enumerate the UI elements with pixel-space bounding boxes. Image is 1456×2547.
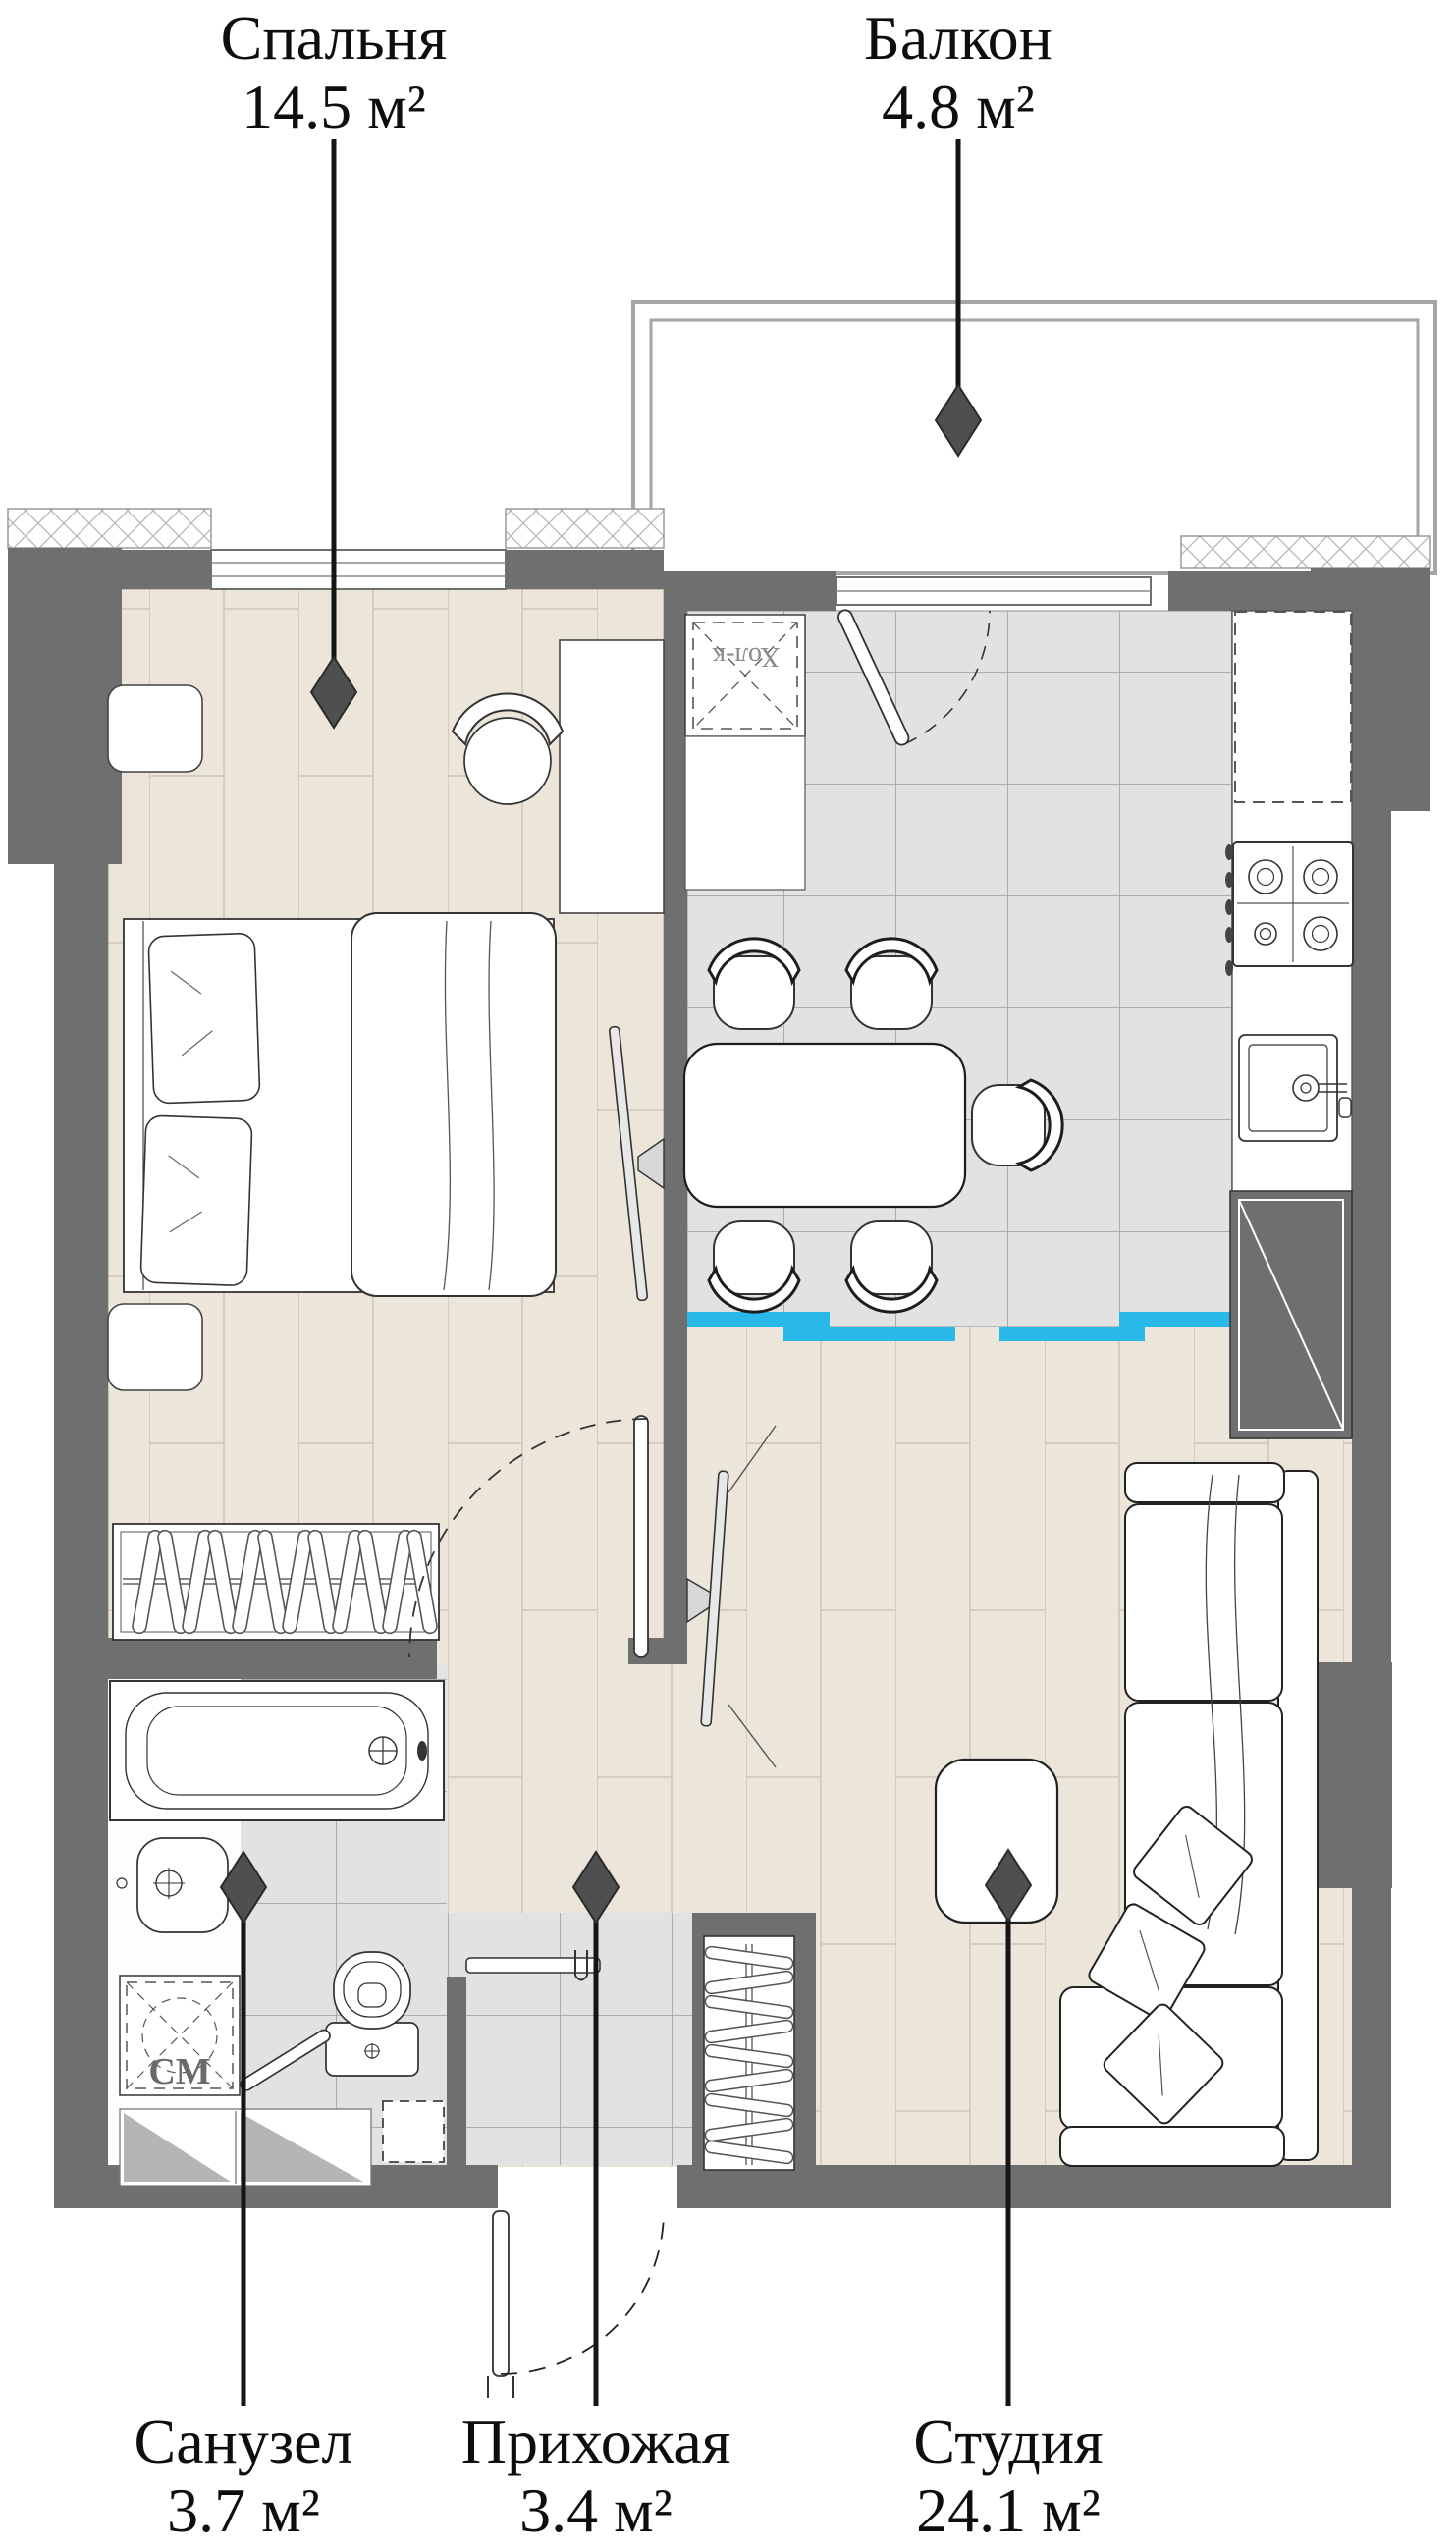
kitchen-dark-cabinet [1230,1191,1352,1438]
label-balcony: Балкон 4.8 м² [713,4,1204,141]
kitchen-upper-cabinet [1235,612,1351,802]
desk [560,640,664,913]
wall-bathroom-right [447,1977,466,2167]
diamond-balcony-icon [936,385,981,456]
fridge-label: Хол-к [712,641,780,672]
dining-table [684,1044,965,1207]
entrance-door [488,2211,664,2398]
entry-closet [704,1936,794,2170]
balcony-window [836,577,1151,605]
room-name: Балкон [713,4,1204,73]
hallway-floor [447,1913,692,2165]
fridge: Хол-к [685,615,805,736]
duct-dashed [383,2101,444,2162]
wall-right [1352,807,1391,2167]
room-area: 24.1 м² [763,2476,1254,2545]
bathtub [110,1681,444,1820]
toilet [326,1952,418,2076]
wall-closet-right [794,1936,816,2170]
label-studio: Студия 24.1 м² [763,2408,1254,2545]
wall-right-block [1314,1662,1392,1888]
bed [124,913,556,1296]
kitchen-cabinet-low [685,736,805,890]
floor-plan-page: Хол-к [0,0,1456,2547]
nightstand-bottom [108,1304,202,1390]
room-name: Студия [763,2408,1254,2476]
wardrobe [113,1524,439,1640]
stove [1225,842,1353,976]
balcony-outline [633,302,1435,573]
duvet [351,913,556,1296]
room-name: Спальня [88,4,579,73]
nightstand-top [108,685,202,772]
room-area: 14.5 м² [88,73,579,141]
wall-top-kitchen-a [664,571,836,611]
room-area: 4.8 м² [713,73,1204,141]
label-bedroom: Спальня 14.5 м² [88,4,579,141]
wall-bathroom-top [93,1638,437,1679]
bedroom-window [211,550,506,589]
kitchen-sink [1239,1035,1351,1141]
wall-closet-left [692,1936,704,2170]
wall-top-left-pilaster [8,548,122,864]
wall-bottom-right [677,2165,1391,2208]
washer-label: СМ [148,2051,210,2092]
wall-closet-top [692,1913,816,1936]
wall-top-bedroom-b [506,550,664,589]
floor-plan-drawing: Хол-к [0,0,1456,2547]
wall-top-bedroom-a [122,550,211,589]
wall-top-kitchen-b [1168,571,1311,611]
wall-left [54,862,108,2170]
washing-machine: СМ [120,1976,240,2095]
